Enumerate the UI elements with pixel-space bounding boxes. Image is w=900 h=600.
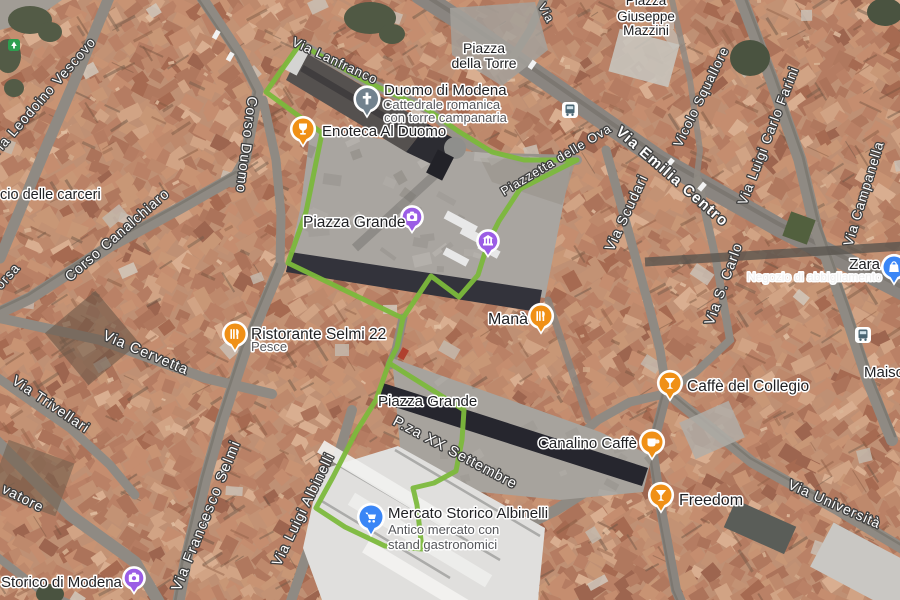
svg-text:della Torre: della Torre	[451, 55, 516, 71]
svg-text:Maiso: Maiso	[864, 364, 900, 381]
svg-text:Mercato Storico Albinelli: Mercato Storico Albinelli	[388, 505, 548, 522]
svg-text:Manà: Manà	[488, 311, 528, 328]
svg-text:Mazzini: Mazzini	[623, 23, 669, 38]
svg-text:Enoteca Al Duomo: Enoteca Al Duomo	[322, 123, 446, 140]
svg-text:Storico di Modena: Storico di Modena	[1, 574, 123, 591]
svg-text:Piazza: Piazza	[463, 40, 505, 56]
svg-text:Piazza: Piazza	[626, 0, 667, 8]
svg-text:Negozio di abbigliamento: Negozio di abbigliamento	[747, 270, 882, 284]
svg-text:Piazza Grande: Piazza Grande	[303, 214, 406, 231]
svg-text:Piazza Grande: Piazza Grande	[378, 393, 477, 410]
svg-text:cio delle carceri: cio delle carceri	[0, 187, 101, 203]
svg-text:Canalino Caffè: Canalino Caffè	[538, 435, 637, 452]
svg-text:stand gastronomici: stand gastronomici	[388, 537, 497, 552]
svg-text:Caffè del Collegio: Caffè del Collegio	[687, 378, 809, 395]
svg-text:Antico mercato con: Antico mercato con	[388, 522, 499, 537]
svg-text:Pesce: Pesce	[251, 339, 287, 354]
svg-text:Freedom: Freedom	[679, 492, 743, 509]
svg-text:Giuseppe: Giuseppe	[617, 9, 675, 24]
